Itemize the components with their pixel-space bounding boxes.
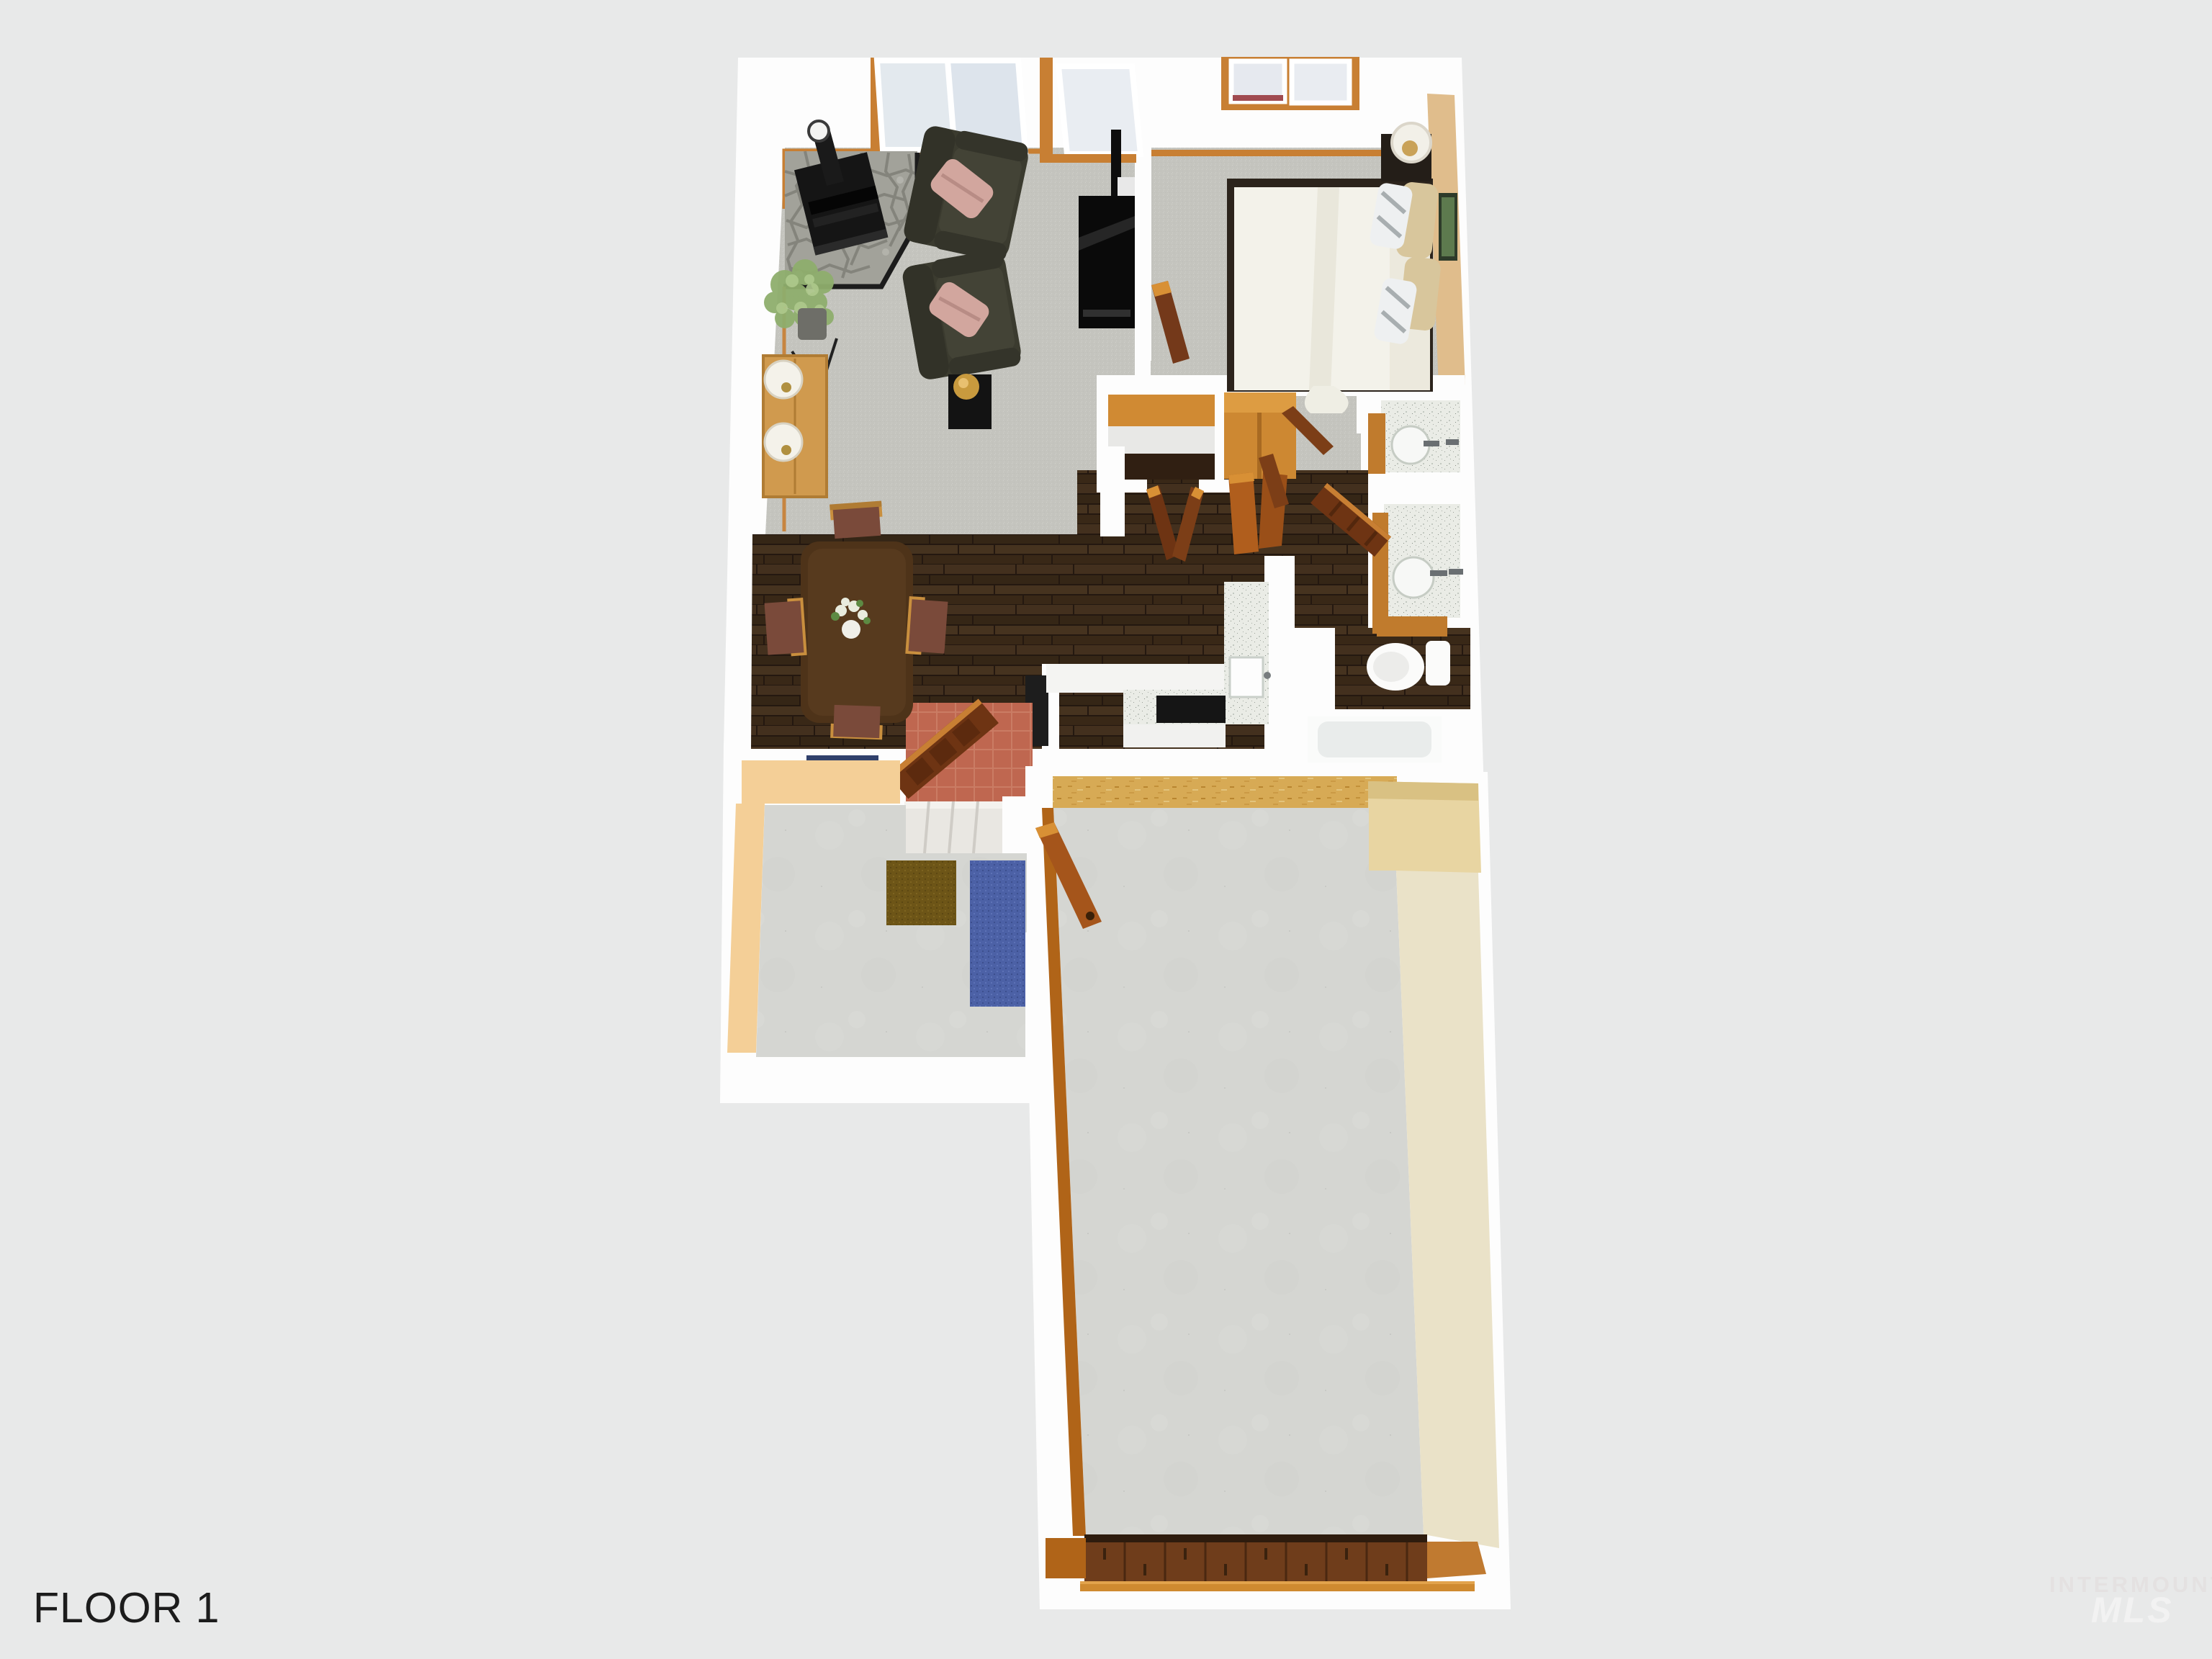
svg-text:MLS: MLS bbox=[2091, 1590, 2174, 1630]
svg-text:FLOOR 1: FLOOR 1 bbox=[33, 1584, 220, 1632]
